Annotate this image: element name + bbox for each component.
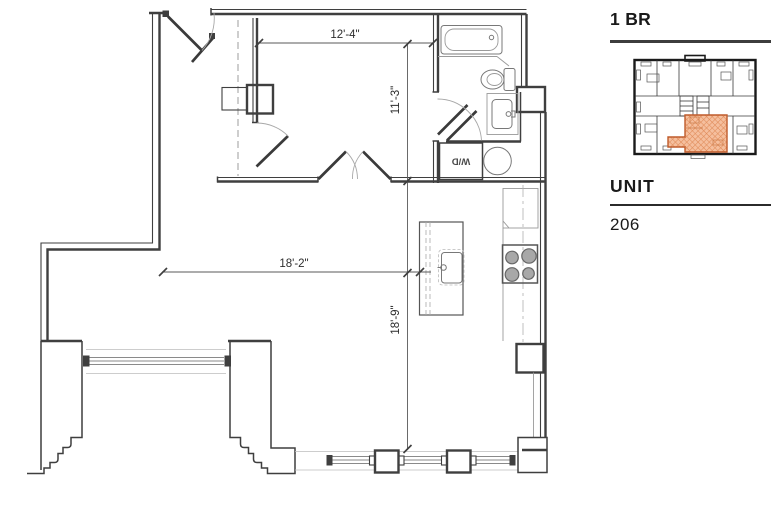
plan-type-label: 1 BR: [610, 9, 651, 30]
dim-bedroom-depth: 11'-3": [390, 86, 402, 114]
window-mullion: [370, 451, 405, 473]
unit-number: 206: [610, 215, 640, 235]
window-mullion: [442, 451, 477, 473]
entry-door: [168, 13, 215, 62]
unit-heading: UNIT: [610, 176, 655, 197]
exterior-walls: [41, 8, 546, 437]
island-sink: [442, 253, 463, 284]
divider-top: [610, 40, 771, 43]
floorplan-drawing: W/D: [0, 0, 600, 517]
pier-bottom-right: [518, 438, 547, 473]
bathroom: [438, 26, 519, 141]
toilet: [481, 70, 504, 89]
divider-bottom: [610, 204, 771, 206]
bay-window-left: [27, 341, 295, 474]
dim-living-width: 18'-2": [279, 258, 308, 270]
refrigerator: [517, 344, 544, 373]
stove-burners: [505, 249, 536, 282]
water-heater: [484, 147, 512, 175]
dim-bedroom-width: 12'-4": [330, 29, 359, 41]
bay-window-bottom: [295, 438, 547, 473]
page: W/D: [0, 0, 780, 517]
kitchen: [420, 185, 544, 437]
washer-dryer-label: W/D: [452, 156, 471, 167]
pier-right: [228, 341, 295, 474]
dimensions: 12'-4" 11'-3" 18'-2" 18'-9": [159, 29, 437, 453]
dim-living-depth: 18'-9": [390, 305, 402, 334]
bedroom-double-door: [319, 152, 391, 180]
laundry-closet: W/D: [440, 143, 512, 180]
pier-left: [27, 341, 82, 474]
building-key-plan: [633, 54, 757, 161]
